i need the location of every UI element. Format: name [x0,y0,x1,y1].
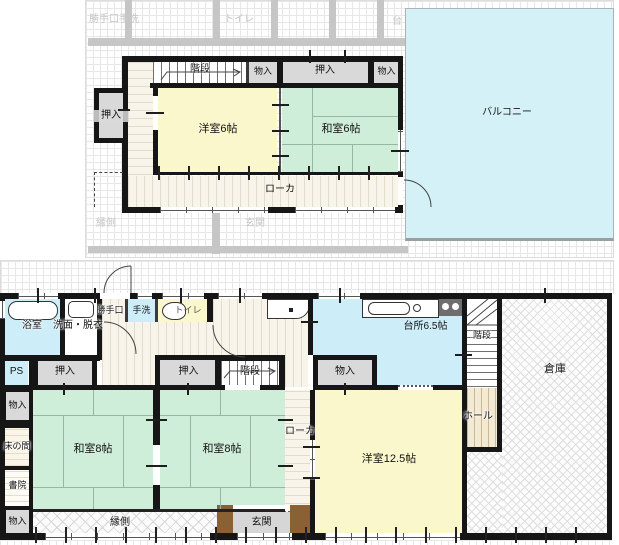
window [398,130,403,172]
storage-b-label: 物入 [4,516,31,526]
wall [246,62,249,83]
wall [0,357,100,361]
wall [313,385,467,390]
wash-basin [68,301,94,318]
washroom-label: 洗面・脱衣 [47,320,109,332]
hand-wash-label: 手洗 [128,305,155,315]
corridor-strip [285,390,313,512]
storage-label: 物入 [249,66,277,76]
japanese-room-right-label: 和室8帖 [187,443,257,456]
storage-label: 物入 [374,66,399,76]
bathtub [8,301,58,320]
warehouse-label: 倉庫 [531,363,579,376]
ghost-wall [329,0,336,38]
sliding-door-dotted [398,385,433,390]
wall [277,56,283,88]
wall [155,299,158,322]
window [295,207,395,213]
balcony-label: バルコニー [462,107,552,119]
grid-paper [0,260,614,294]
wall [207,299,213,322]
dashed-line [94,172,95,207]
ghost-label-backdoor-wash: 勝手口手洗 [89,10,139,25]
wall [462,293,467,388]
tatami-line [160,487,285,488]
stove-burner [442,303,449,310]
stove-burner [452,303,459,310]
kitchen-label: 台所6.5帖 [388,321,463,333]
veranda-label: 縁側 [98,517,142,529]
pipe-space-label: PS [5,366,28,378]
ghost-wall [88,38,408,46]
kitchen [377,355,462,388]
wall [497,293,502,452]
window [318,293,360,299]
dashed-line [94,172,123,173]
tatami-line [220,390,221,415]
kitchen-sink [368,302,410,315]
tatami-line [93,390,94,415]
window [18,293,58,299]
ghost-wall [213,0,220,38]
tatami-line [160,415,285,416]
hall-label: ホール [455,411,501,423]
western-room-125-label: 洋室12.5帖 [350,453,428,466]
storage-kitchen-label: 物入 [318,366,372,378]
western-room-6-label: 洋室6帖 [183,123,253,136]
wall [368,62,374,88]
ghost-label-entrance: 玄関 [245,214,265,229]
door-gap [225,385,260,390]
bath-label: 浴室 [12,320,52,332]
tokonoma-label: 床の間 [1,441,33,451]
floorplan-canvas: 勝手口手洗 トイレ 台 縁側 玄関 バルコニー 階段 物入 押入 物入 洋室6帖… [0,0,619,545]
back-door-label: 勝手口 [92,305,128,315]
shoin-label: 書院 [4,480,31,490]
faucet [413,304,421,312]
stairs-1f-label: 階段 [228,366,272,378]
tick-marks [35,527,605,543]
door-gap [398,177,403,205]
door-gap [153,445,160,485]
closet-b-label: 押入 [160,366,217,378]
ghost-label-veranda: 縁側 [96,214,116,229]
closet-left-label: 押入 [93,110,129,122]
japanese-room-6-label: 和室6帖 [306,123,376,136]
ghost-wall [271,0,278,38]
wall [33,509,285,512]
japanese-room-left-label: 和室8帖 [58,443,128,456]
entrance-label: 玄関 [238,517,285,529]
wall [122,56,403,62]
window [160,207,268,213]
storage-a-label: 物入 [4,400,31,410]
warehouse [467,452,502,533]
cabinet-knob [289,308,293,312]
corridor-1f-label: ローカ [280,426,320,438]
tatami-line [282,144,399,145]
tatami-line [33,415,153,416]
stairs-winder-label: 階段 [463,330,501,340]
wall [0,293,5,539]
wall [0,293,612,299]
warehouse [502,299,607,533]
window [0,301,5,319]
wall [308,293,313,355]
toilet-label: トイレ [170,305,206,315]
closet-label: 押入 [303,65,347,77]
ghost-wall [88,246,408,253]
ghost-wall [377,0,384,38]
stairs-winder [467,299,497,325]
stairs-2f-label: 階段 [178,64,222,76]
window [218,293,262,299]
balcony [405,8,614,241]
corridor-2f-label: ローカ [259,184,301,196]
ghost-label-kitchen: 台 [392,12,402,27]
closet-a-label: 押入 [38,366,92,378]
window [137,293,152,299]
sliding-door-line [279,88,281,172]
door-gap [153,96,158,130]
ghost-label-toilet: トイレ [224,10,254,25]
tick-marks [158,166,398,180]
window [162,293,204,299]
door-gap [310,440,315,480]
tatami-line [312,116,399,117]
wall [462,447,502,452]
wall [607,293,612,539]
